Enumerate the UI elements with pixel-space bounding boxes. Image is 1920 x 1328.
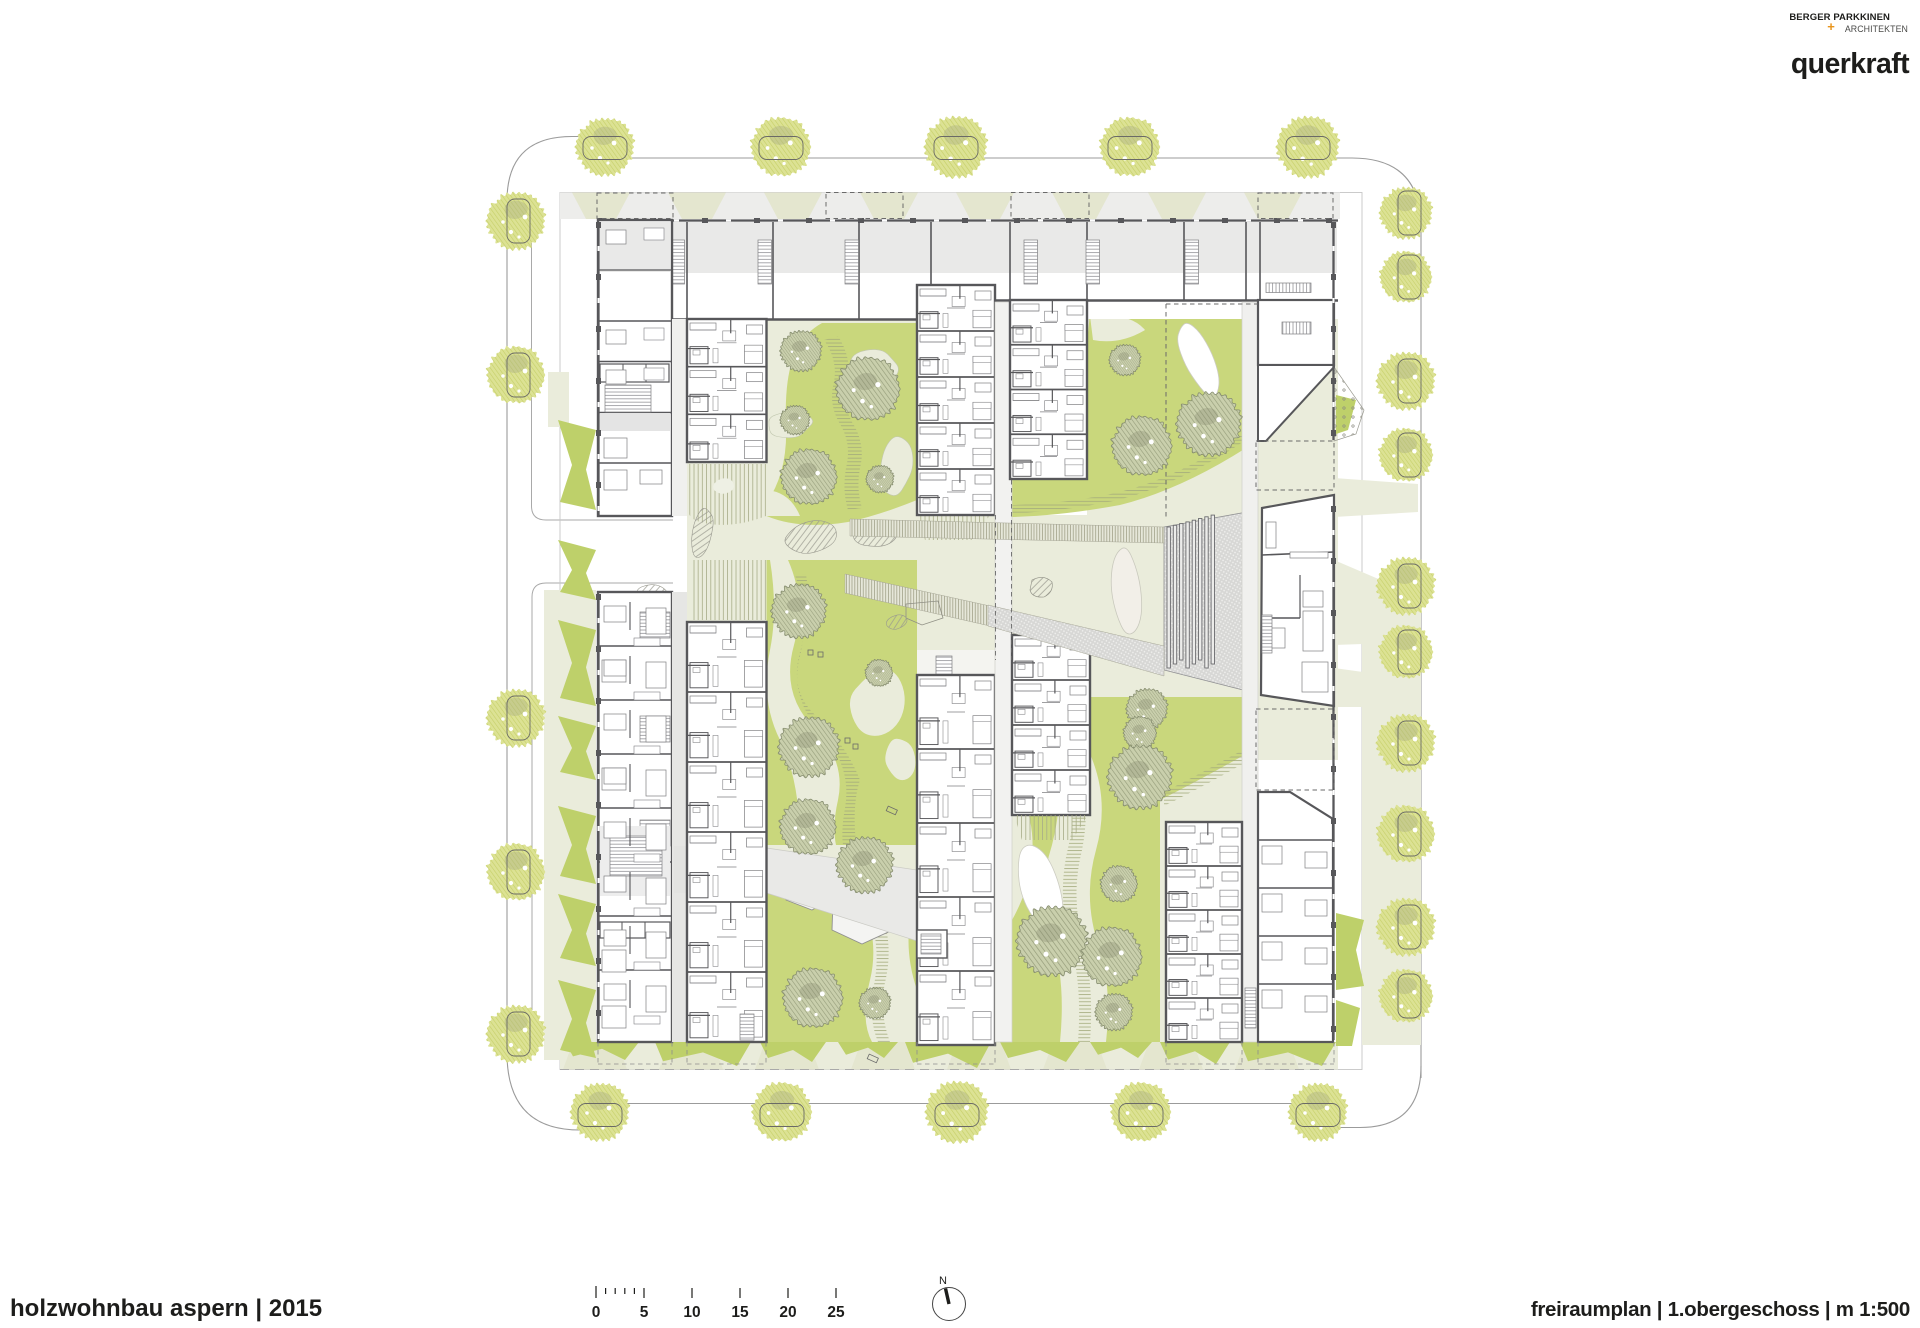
svg-text:15: 15 (731, 1304, 749, 1321)
svg-text:20: 20 (779, 1304, 796, 1321)
svg-text:0: 0 (592, 1304, 601, 1321)
svg-text:holzwohnbau aspern | 2015: holzwohnbau aspern | 2015 (10, 1295, 322, 1322)
svg-text:5: 5 (640, 1304, 649, 1321)
svg-text:querkraft: querkraft (1791, 48, 1910, 80)
svg-text:BERGER PARKKINEN: BERGER PARKKINEN (1789, 12, 1890, 23)
svg-text:25: 25 (827, 1304, 845, 1321)
svg-text:freiraumplan | 1.obergeschoss: freiraumplan | 1.obergeschoss | m 1:500 (1531, 1298, 1910, 1321)
svg-text:N: N (939, 1275, 947, 1287)
svg-text:ARCHITEKTEN: ARCHITEKTEN (1845, 24, 1908, 34)
svg-text:10: 10 (683, 1304, 700, 1321)
svg-text:+: + (1827, 19, 1835, 34)
